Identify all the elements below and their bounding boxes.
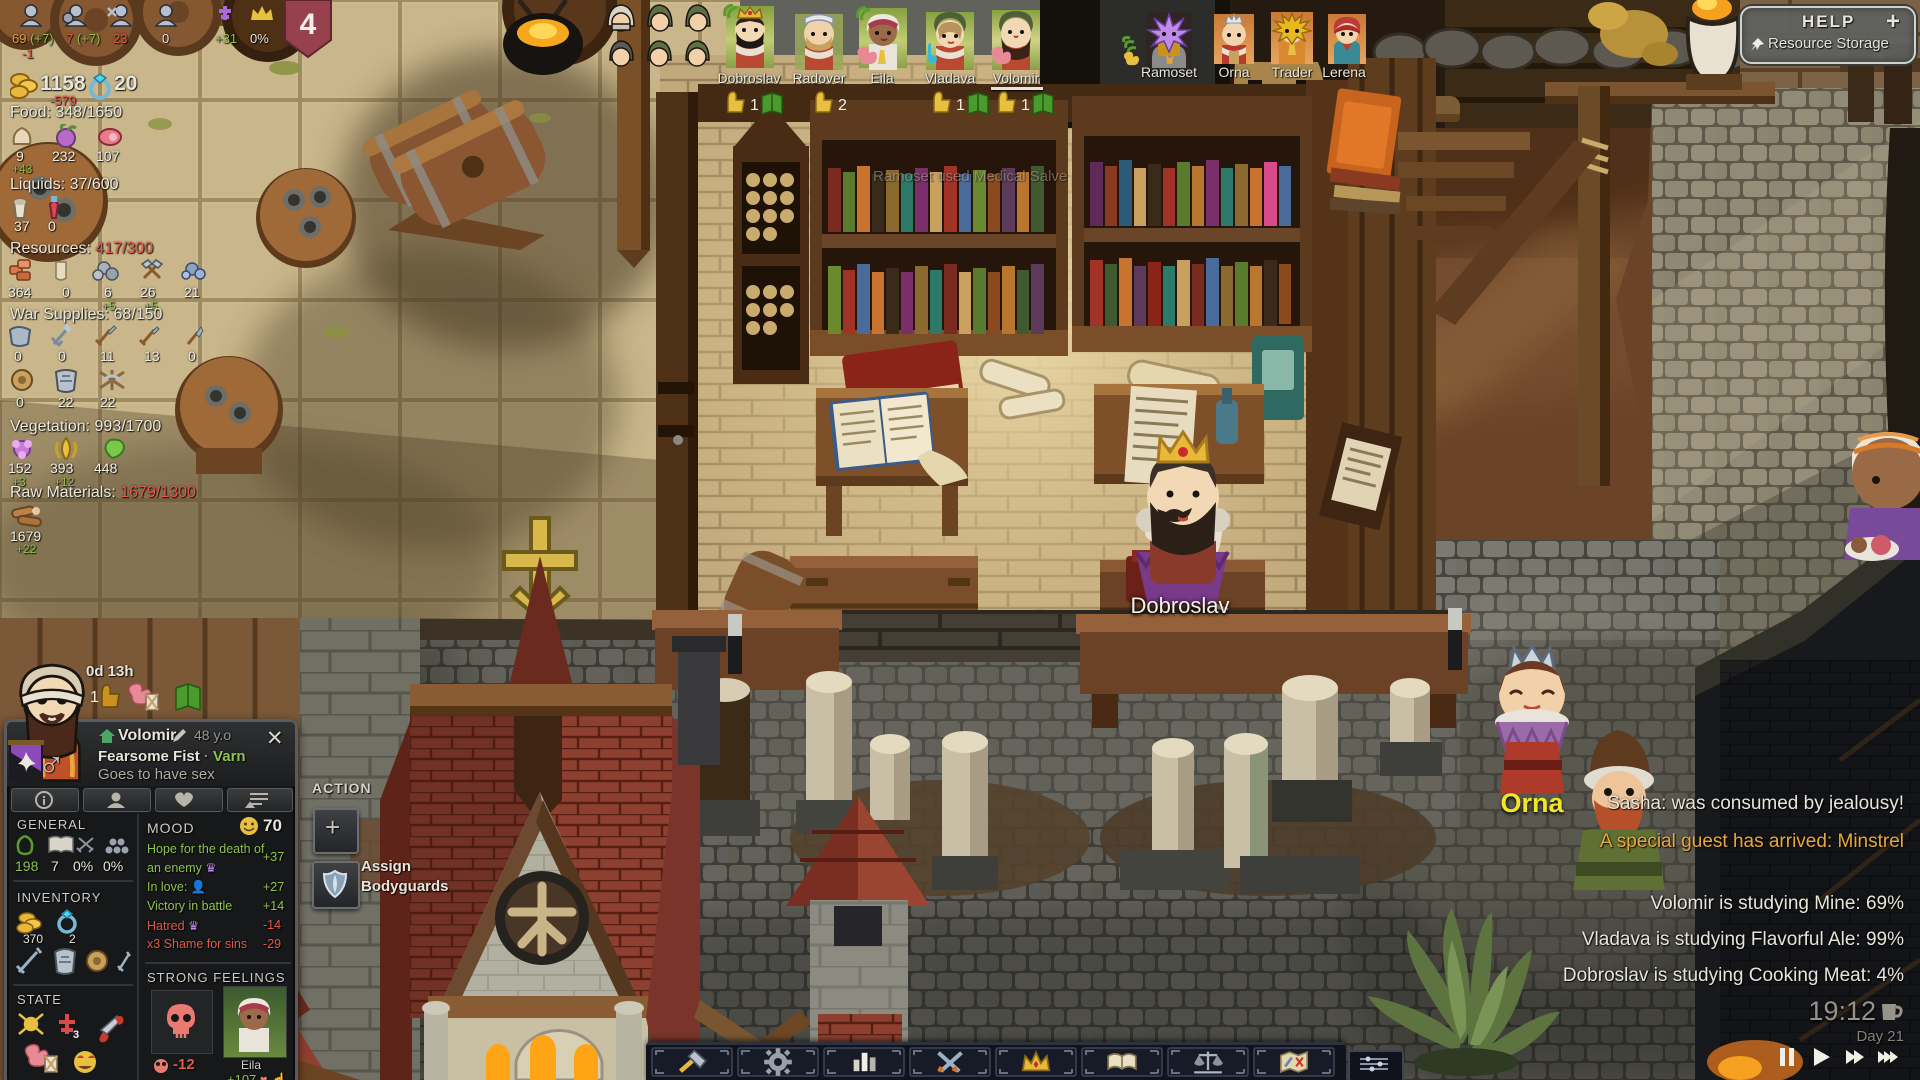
svg-text:2: 2 (838, 97, 847, 114)
svg-text:4: 4 (300, 8, 317, 41)
svg-text:1: 1 (750, 97, 759, 114)
svg-text:1: 1 (956, 97, 965, 114)
svg-text:3: 3 (73, 1029, 79, 1041)
svg-text:1: 1 (1021, 97, 1030, 114)
